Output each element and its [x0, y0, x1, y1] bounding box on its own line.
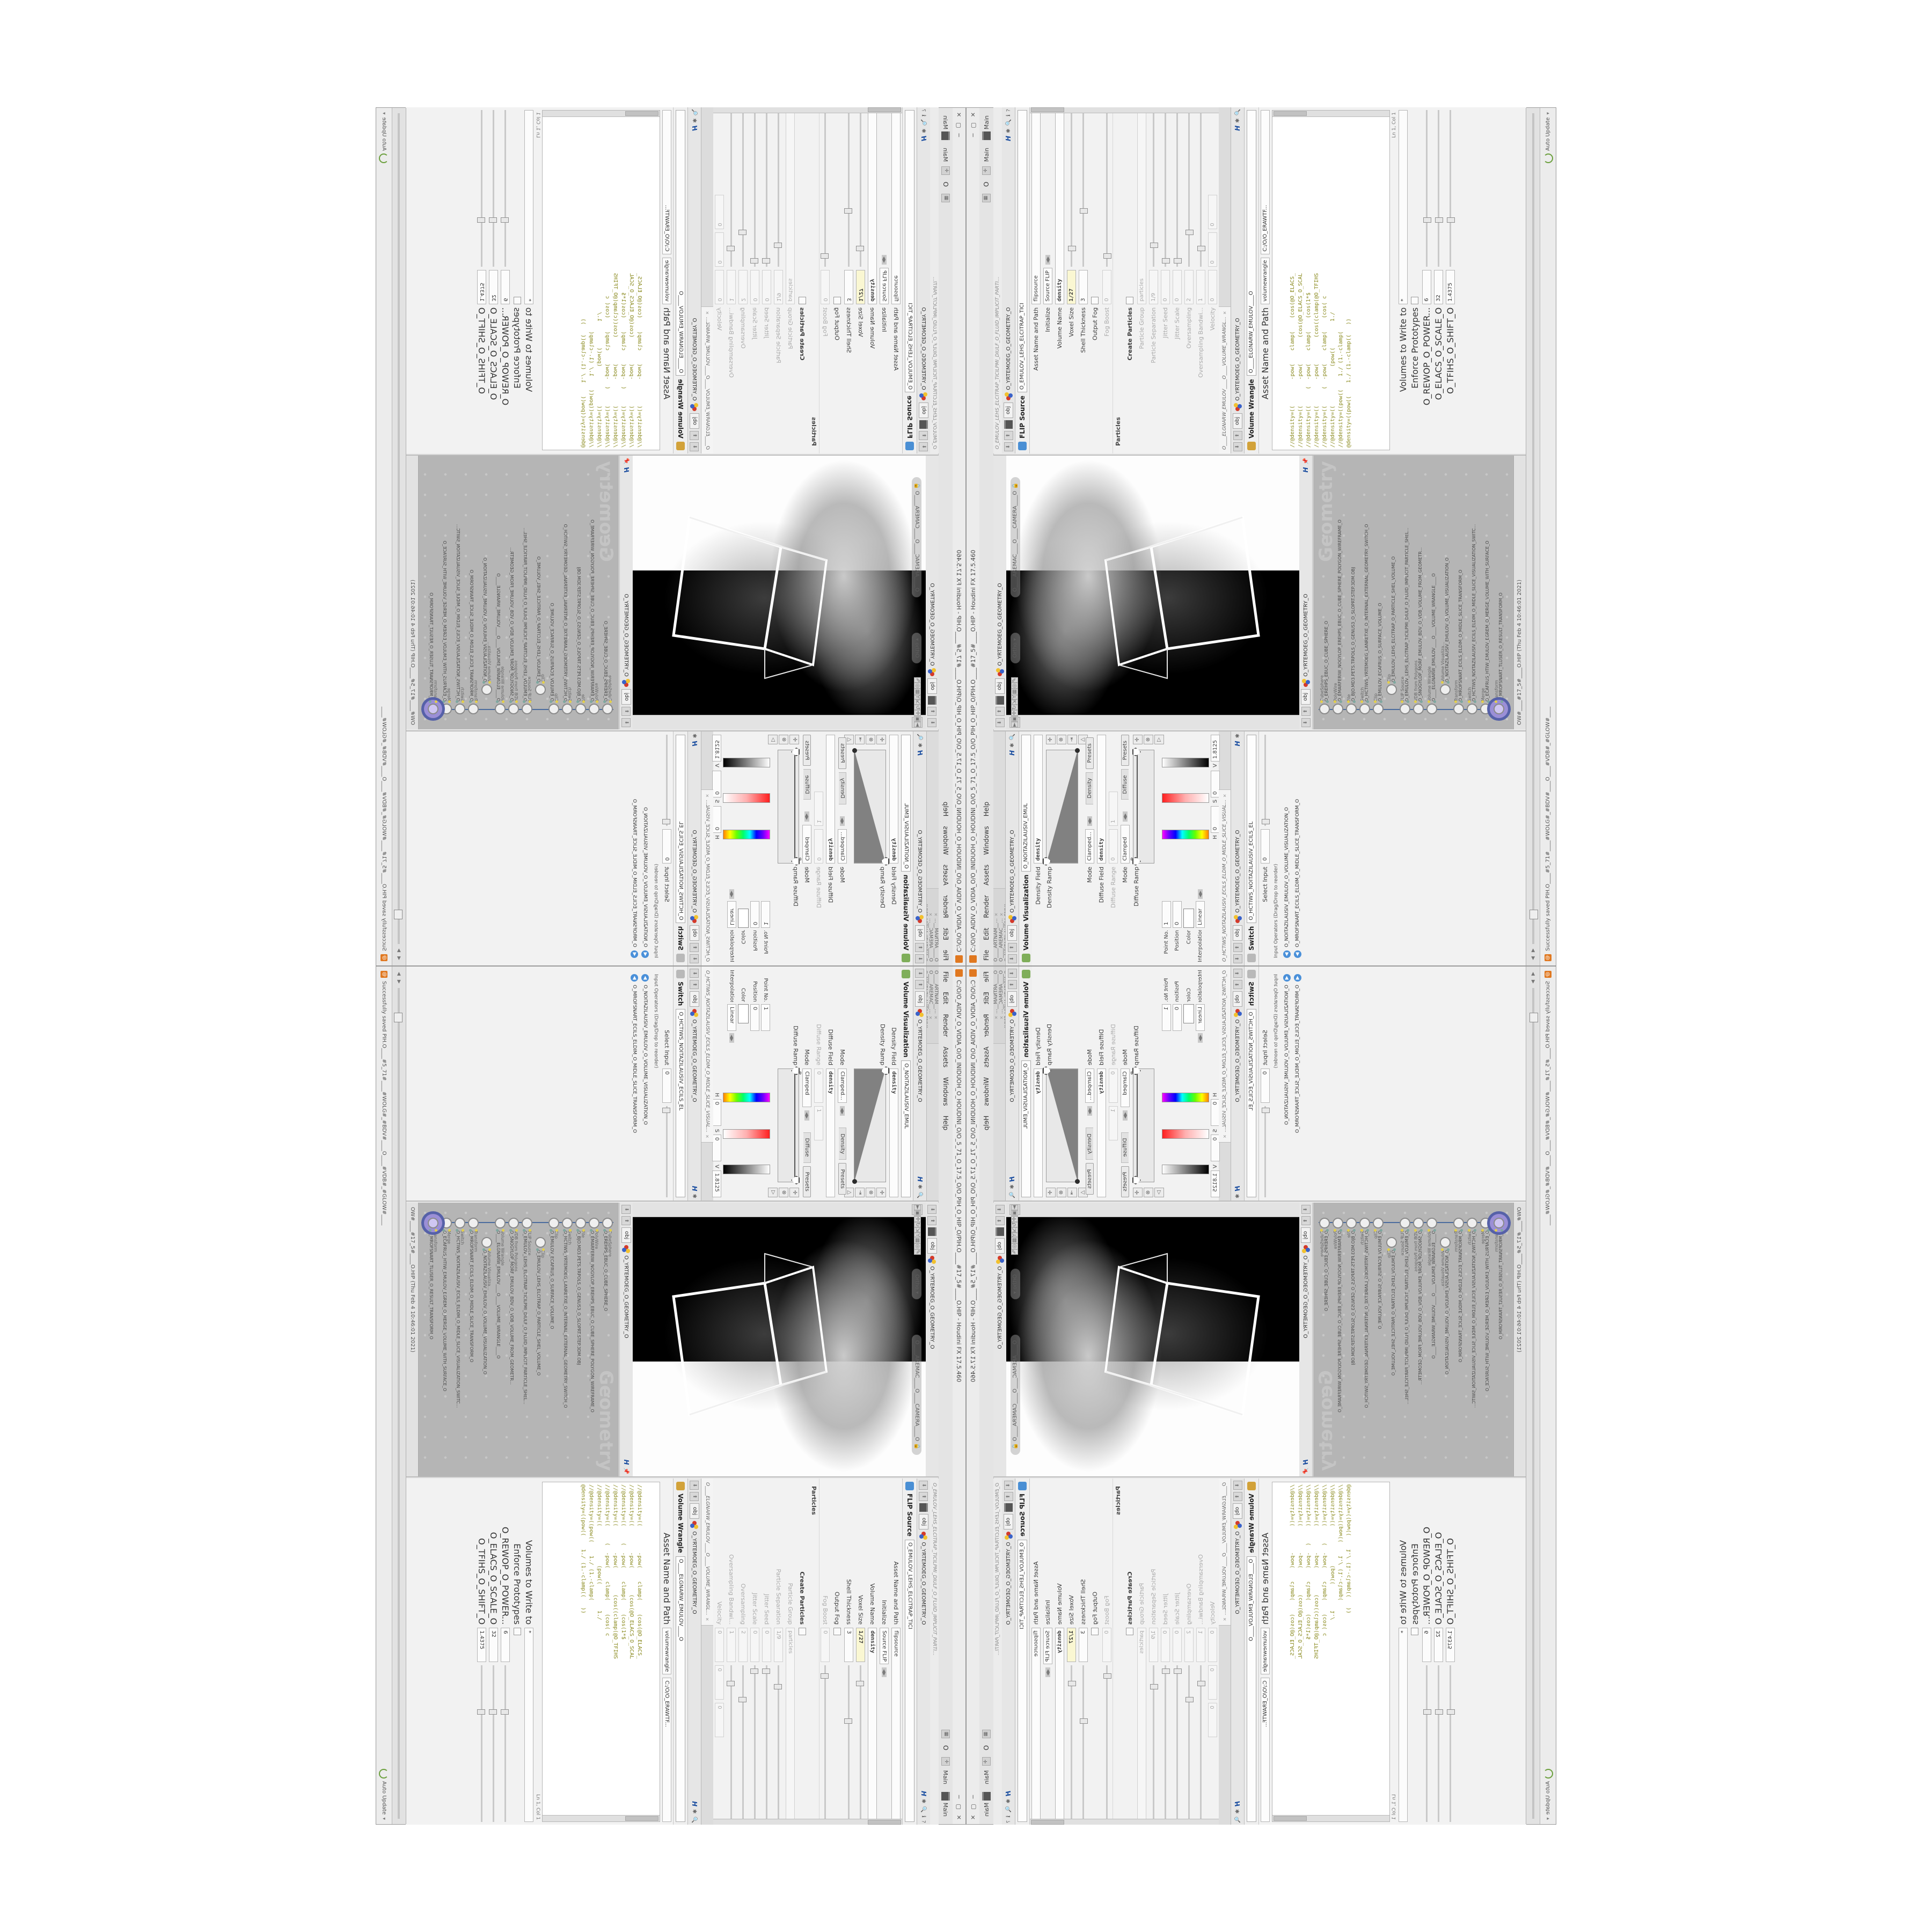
- render-flag-icon[interactable]: [1353, 700, 1356, 703]
- density-field-input[interactable]: density: [890, 1069, 899, 1197]
- breadcrumb-path[interactable]: O_YRTEMOEG_O_GEOMETRY_O: [1006, 307, 1012, 390]
- gear-icon[interactable]: ✱: [1235, 118, 1241, 122]
- desktop-selector[interactable]: ✛ Main: [982, 148, 991, 177]
- nav-back-icon[interactable]: ⬇: [690, 954, 699, 963]
- message-log-icon[interactable]: @: [1545, 971, 1552, 978]
- render-flag-icon[interactable]: [1393, 681, 1396, 684]
- jitter-scale-slider[interactable]: [1176, 1665, 1178, 1822]
- select-input-field[interactable]: 0: [663, 829, 672, 863]
- nav-back-icon[interactable]: ⬇: [1233, 1481, 1242, 1490]
- particle-separation-input[interactable]: 1/9: [774, 270, 784, 304]
- menu-item[interactable]: Assets: [942, 1042, 949, 1072]
- display-flag-icon[interactable]: [1360, 700, 1363, 703]
- pin-icon[interactable]: 📌: [624, 458, 630, 464]
- ramp-point-icon[interactable]: [852, 1179, 857, 1184]
- nav-back-icon[interactable]: ⬇: [1301, 1205, 1311, 1214]
- shell-thickness-input[interactable]: 3: [845, 270, 854, 304]
- node-circle-icon[interactable]: [1467, 704, 1477, 714]
- gear-icon[interactable]: ✱: [917, 1184, 923, 1189]
- menu-item[interactable]: Edit: [983, 923, 990, 945]
- breadcrumb-path[interactable]: O_YRTEMOEG_O_GEOMETRY_O: [692, 1531, 698, 1614]
- reorder-icon[interactable]: ◀: [631, 974, 638, 982]
- viewport-tool-icon[interactable]: ↻: [914, 1222, 921, 1227]
- viewport-tool-icon[interactable]: ✎: [1011, 1249, 1018, 1255]
- h-input[interactable]: 0: [712, 806, 721, 833]
- fog-boost-input[interactable]: 0: [1102, 270, 1111, 304]
- ramp-point-icon[interactable]: [1075, 1179, 1080, 1184]
- scene-viewport[interactable]: ►▣✛↻⇲Y▦◎✎ Ortho ▾ O____AREMAC____O____CA…: [1006, 1203, 1299, 1476]
- voxel-size-slider[interactable]: [1071, 110, 1072, 267]
- spare-parm-slider[interactable]: [1426, 110, 1428, 267]
- viewport-tool-icon[interactable]: ⇲: [1011, 699, 1018, 705]
- spare-parm-input[interactable]: 1.4375: [478, 270, 487, 304]
- gear-icon[interactable]: ✱: [917, 743, 923, 747]
- display-flag-icon[interactable]: [1428, 1229, 1430, 1232]
- velocity-z-input[interactable]: 0: [1208, 1703, 1217, 1737]
- close-tab-icon[interactable]: ✕: [1223, 794, 1227, 797]
- viewport-tool-icon[interactable]: ◎: [914, 683, 921, 689]
- ramp-add-icon[interactable]: ✛: [1046, 1188, 1056, 1197]
- viz-node-name-field[interactable]: O_NOITAZILAUSIV_EMUL: [1021, 735, 1031, 872]
- diffuse-field-input[interactable]: density: [1097, 1069, 1106, 1197]
- ramp-del-icon[interactable]: ⊗: [1144, 735, 1153, 744]
- help-icon[interactable]: ?: [1006, 109, 1012, 112]
- breadcrumb-path[interactable]: O_YRTEMOEG_O_GEOMETRY_O: [1235, 830, 1241, 912]
- reorder-icon[interactable]: ◀: [641, 950, 649, 958]
- pane-tab[interactable]: O_NOITAZILAUSIV_EMUL...✕: [926, 967, 928, 1044]
- oversampling-input[interactable]: 2: [1184, 1628, 1194, 1662]
- node-circle-icon[interactable]: [1319, 704, 1330, 714]
- point-no-input[interactable]: 1: [761, 1004, 770, 1031]
- search-icon[interactable]: 🔍: [921, 1806, 927, 1812]
- network-node[interactable]: FLIP Source O_EMULOV_LEHS_ELCITRAP_TICIL…: [1398, 1203, 1411, 1476]
- nav-back-icon[interactable]: ⬇: [919, 1481, 928, 1490]
- fog-boost-input[interactable]: 0: [1102, 1628, 1111, 1662]
- saturation-bar[interactable]: [1162, 1129, 1209, 1139]
- pane-tab[interactable]: O____AREMAC__...✕: [999, 967, 1004, 1044]
- network-editor[interactable]: Geometry CubeSphere O_EREHPS_EBUC_O_CUBE…: [418, 1203, 619, 1476]
- timeline-slider[interactable]: [1532, 988, 1534, 1819]
- diffuse-mode-select[interactable]: Clamped R...: [1121, 1069, 1130, 1107]
- display-flag-icon[interactable]: [1401, 1229, 1403, 1232]
- gear-icon[interactable]: ✱: [1235, 1809, 1241, 1813]
- close-tab-icon[interactable]: ✕: [928, 1016, 933, 1020]
- dropdown-arrows-icon[interactable]: ◀▶: [805, 811, 810, 821]
- nav-fwd-icon[interactable]: ⬆: [1233, 980, 1242, 989]
- render-flag-icon[interactable]: [1393, 1248, 1396, 1251]
- particle-separation-slider[interactable]: [778, 1665, 780, 1822]
- color-swatch[interactable]: [1183, 1004, 1194, 1023]
- gear-icon[interactable]: ✱: [1009, 743, 1015, 747]
- diffuse-mode-select[interactable]: Clamped R...: [1121, 825, 1130, 863]
- gear-icon[interactable]: ✱: [1006, 1799, 1012, 1803]
- display-flag-icon[interactable]: [1414, 700, 1417, 703]
- close-tab-icon[interactable]: ✕: [928, 912, 933, 916]
- network-node[interactable]: Switch O_HCTIWS_YRTEMOEG_LANRETXE_O_INTE…: [561, 1203, 574, 1476]
- search-icon[interactable]: 🔍: [692, 1817, 698, 1823]
- timeline-thumb[interactable]: [394, 1013, 402, 1022]
- network-node[interactable]: VDB from Polygons O_SNOGYLOP_MORF_EMULOV…: [1411, 456, 1425, 729]
- nav-fwd-icon[interactable]: ⬆: [916, 943, 925, 952]
- viewport-tool-icon[interactable]: ►: [914, 1205, 921, 1210]
- jitter-scale-input[interactable]: 0: [751, 270, 760, 304]
- nav-fwd-icon[interactable]: ⬆: [928, 707, 937, 716]
- spare-parm-input[interactable]: 1.4375: [478, 1628, 487, 1662]
- network-node[interactable]: Switch O_HCTIWS_YRTEMOEG_LANRETXE_O_INTE…: [1358, 456, 1371, 729]
- node-circle-icon[interactable]: [469, 704, 479, 714]
- render-flag-icon[interactable]: [550, 700, 553, 703]
- layout-icon[interactable]: ▦: [982, 194, 991, 202]
- nav-fwd-icon[interactable]: ⬆: [622, 1216, 631, 1225]
- close-tab-icon[interactable]: ✕: [999, 912, 1004, 916]
- pane-tab[interactable]: O____ARTNAM__...✕: [993, 888, 999, 965]
- minimize-button[interactable]: ─: [970, 1795, 977, 1799]
- breadcrumb-path[interactable]: O_YRTEMOEG_O_GEOMETRY_O: [1235, 1531, 1241, 1614]
- close-tab-icon[interactable]: ✕: [999, 1016, 1004, 1020]
- breadcrumb-path[interactable]: O_YRTEMOEG_O_GEOMETRY_O: [624, 1255, 630, 1338]
- spare-parm-slider[interactable]: [1438, 1665, 1439, 1822]
- viewport-tool-icon[interactable]: ▣: [1011, 716, 1018, 722]
- node-circle-icon[interactable]: [562, 1218, 573, 1228]
- close-tab-icon[interactable]: ✕: [705, 1135, 710, 1138]
- nav-fwd-icon[interactable]: ⬆: [916, 980, 925, 989]
- oversampling-slider[interactable]: [1188, 1665, 1190, 1822]
- network-node[interactable]: File O_BJO.MD3.PETS.TRPOLS_O_GENUS3_O_SL…: [1344, 456, 1358, 729]
- network-node[interactable]: FLIP Source O_EMULOV_LEHS_ELCITRAP_TICIL…: [521, 456, 534, 729]
- velocity-y-input[interactable]: 0: [1208, 232, 1217, 267]
- jitter-seed-input[interactable]: 0: [1161, 1628, 1170, 1662]
- timeline-slider[interactable]: [1532, 113, 1534, 944]
- diffuse-folder-tab[interactable]: Diffuse: [1121, 1132, 1129, 1163]
- render-flag-icon[interactable]: [1433, 700, 1436, 703]
- display-flag-icon[interactable]: [1320, 700, 1323, 703]
- close-tab-icon[interactable]: ✕: [934, 913, 939, 917]
- initialize-select[interactable]: Source FLIP: [1043, 1628, 1052, 1664]
- velocity-x-input[interactable]: 0: [715, 270, 724, 304]
- particles-section-label[interactable]: Particles: [1113, 107, 1124, 453]
- ramp-del-icon[interactable]: ⊗: [866, 735, 875, 744]
- menu-item[interactable]: Help: [983, 797, 990, 821]
- obj-breadcrumb[interactable]: obj: [1233, 1503, 1242, 1519]
- spare-parm-slider[interactable]: [493, 1665, 495, 1822]
- info-icon[interactable]: ℹ: [921, 1816, 927, 1818]
- obj-breadcrumb[interactable]: obj: [1233, 413, 1242, 429]
- switch-pane-tab[interactable]: O_HCTIWS_NOITAZILAUSIV_ECILS_ELDIM_O_MID…: [1219, 967, 1231, 1143]
- spare-parm-slider[interactable]: [505, 1665, 507, 1822]
- hue-bar[interactable]: [1162, 830, 1209, 839]
- diffuse-range-max[interactable]: 1: [815, 792, 824, 826]
- asset-name-input[interactable]: flipsource: [1031, 1628, 1041, 1822]
- nav-back-icon[interactable]: ⬇: [622, 1205, 631, 1214]
- diffuse-field-input[interactable]: density: [826, 1069, 836, 1197]
- obj-breadcrumb[interactable]: obj: [1004, 402, 1013, 418]
- node-circle-icon[interactable]: [1467, 1218, 1477, 1228]
- oversampling-bandwidth-slider[interactable]: [731, 1665, 733, 1822]
- ortho-pill[interactable]: Ortho ▾: [1011, 633, 1020, 663]
- node-circle-icon[interactable]: [1400, 704, 1410, 714]
- close-button[interactable]: ✕: [970, 1815, 977, 1820]
- obj-breadcrumb[interactable]: obj: [995, 678, 1005, 694]
- hue-bar[interactable]: [723, 1093, 770, 1102]
- ramp-handle-icon[interactable]: [1132, 1176, 1141, 1184]
- camera-pill[interactable]: O____AREMAC____O____CAMERA____O 🔒: [912, 477, 921, 597]
- velocity-z-input[interactable]: 0: [715, 195, 724, 229]
- gear-icon[interactable]: ✱: [1009, 1184, 1015, 1189]
- node-circle-icon[interactable]: [1346, 704, 1357, 714]
- particle-group-input[interactable]: particles: [786, 110, 795, 304]
- nav-back-icon[interactable]: ⬇: [622, 718, 631, 727]
- v-input[interactable]: 1.8125: [1211, 1170, 1220, 1197]
- velocity-z-input[interactable]: 0: [1208, 195, 1217, 229]
- display-flag-icon[interactable]: [1495, 1229, 1497, 1232]
- display-flag-icon[interactable]: [1334, 1229, 1336, 1232]
- menu-item[interactable]: Windows: [942, 1072, 949, 1111]
- vex-snippet-editor[interactable]: //@density=(( -pow( clamp( (cos(@O_ELACS…: [542, 1482, 660, 1822]
- ramp-add-icon[interactable]: ✛: [876, 1188, 886, 1197]
- node-circle-icon[interactable]: [1333, 1218, 1343, 1228]
- oversampling-input[interactable]: 2: [739, 1628, 748, 1662]
- particle-group-input[interactable]: particles: [1137, 1628, 1146, 1822]
- voxel-size-slider[interactable]: [1071, 1665, 1072, 1822]
- display-flag-icon[interactable]: [1374, 700, 1377, 703]
- create-particles-checkbox[interactable]: [799, 297, 806, 304]
- render-flag-icon[interactable]: [1460, 1229, 1463, 1232]
- menu-item[interactable]: Render: [942, 1009, 949, 1042]
- display-flag-icon[interactable]: [516, 700, 518, 703]
- node-circle-icon[interactable]: [1480, 704, 1491, 714]
- vex-snippet-editor[interactable]: //@density=(( -pow( clamp( (cos(@O_ELACS…: [1272, 1482, 1390, 1822]
- breadcrumb-path[interactable]: O_YRTEMOEG_O_GEOMETRY_O: [997, 583, 1003, 665]
- viewport-tool-icon[interactable]: ►: [1011, 722, 1018, 727]
- node-circle-icon[interactable]: [482, 1237, 493, 1248]
- density-mode-select[interactable]: Clamped...: [838, 829, 847, 863]
- desktop-selector[interactable]: ✛ Main: [941, 1755, 950, 1784]
- initialize-select[interactable]: Source FLIP: [880, 268, 889, 304]
- network-node[interactable]: PolyWire O_EMARFERIW_NOGYLOP_EREHPS_EBUC…: [1331, 456, 1344, 729]
- dropdown-arrows-icon[interactable]: ◀▶: [729, 1033, 734, 1043]
- display-flag-icon[interactable]: [475, 700, 478, 703]
- network-node[interactable]: CubeSphere O_EREHPS_EBUC_O_CUBE_SPHERE_O: [1318, 1203, 1331, 1476]
- network-node[interactable]: FLIP Source O_EMULOV_LEHS_ELCITRAP_TICIL…: [1398, 456, 1411, 729]
- playbar-right-icon[interactable]: ▶: [1531, 980, 1536, 984]
- saturation-bar[interactable]: [723, 1129, 770, 1139]
- nav-back-icon[interactable]: ⬇: [690, 969, 699, 978]
- shell-thickness-slider[interactable]: [1082, 1665, 1084, 1822]
- render-flag-icon[interactable]: [1366, 1229, 1369, 1232]
- particle-separation-slider[interactable]: [778, 110, 780, 267]
- particle-separation-input[interactable]: 1/9: [1149, 270, 1158, 304]
- enforce-prototypes-checkbox[interactable]: [514, 1628, 521, 1635]
- display-flag-icon[interactable]: [1414, 1229, 1417, 1232]
- node-circle-icon[interactable]: [1359, 704, 1370, 714]
- density-presets-button[interactable]: Presets: [1086, 1163, 1094, 1194]
- viewport-tool-icon[interactable]: ✛: [914, 1216, 921, 1221]
- particle-group-input[interactable]: particles: [1137, 110, 1146, 304]
- obj-breadcrumb[interactable]: obj: [919, 402, 928, 418]
- nav-back-icon[interactable]: ⬇: [1008, 954, 1017, 963]
- node-circle-icon[interactable]: [522, 704, 533, 714]
- network-node[interactable]: Switch O_HCTIWS_NOITAZILAUSIV_ECILS_ELDI…: [1465, 1203, 1479, 1476]
- spare-parm-slider[interactable]: [481, 110, 483, 267]
- spare-parm-input[interactable]: 6: [501, 1628, 510, 1662]
- wrangle-node-name-field[interactable]: O____ELGNARW_EMULOV____O: [676, 110, 685, 376]
- viewport-tool-icon[interactable]: ✎: [1011, 677, 1018, 683]
- jitter-scale-slider[interactable]: [755, 1665, 756, 1822]
- breadcrumb-path[interactable]: O_YRTEMOEG_O_GEOMETRY_O: [917, 1019, 923, 1102]
- wrangle-asset-path[interactable]: C:/O/O_ERAWTF...: [663, 1678, 672, 1822]
- node-circle-icon[interactable]: [1333, 704, 1343, 714]
- ramp-point-icon[interactable]: [852, 748, 857, 753]
- nav-fwd-icon[interactable]: ⬆: [928, 1216, 937, 1225]
- node-circle-icon[interactable]: [1494, 704, 1504, 714]
- nav-back-icon[interactable]: ⬇: [1004, 442, 1013, 451]
- nav-fwd-icon[interactable]: ⬆: [690, 431, 699, 440]
- network-node[interactable]: Transform O_MROFSNART_TLUSER_O_RESULT_TR…: [1492, 1203, 1505, 1476]
- wrangle-pane-tab[interactable]: O____ELGNARW_EMULOV____O____VOLUME_WRANG…: [701, 306, 713, 453]
- voxel-size-input[interactable]: 1/27: [857, 1628, 866, 1662]
- node-circle-icon[interactable]: [576, 1218, 587, 1228]
- render-flag-icon[interactable]: [1474, 700, 1476, 703]
- create-particles-checkbox[interactable]: [1126, 1628, 1133, 1635]
- dropdown-arrows-icon[interactable]: ◀▶: [882, 255, 887, 265]
- volume-name-input[interactable]: density: [1055, 110, 1064, 304]
- close-tab-icon[interactable]: ✕: [705, 1618, 710, 1621]
- node-circle-icon[interactable]: [1386, 1237, 1397, 1248]
- saturation-bar[interactable]: [723, 793, 770, 803]
- spare-parm-input[interactable]: 32: [489, 1628, 499, 1662]
- viewport-tool-icon[interactable]: ►: [1011, 1205, 1018, 1210]
- maximize-button[interactable]: ▢: [970, 122, 977, 128]
- node-circle-icon[interactable]: [536, 684, 546, 695]
- diffuse-field-input[interactable]: density: [1097, 735, 1106, 863]
- viewport-tool-icon[interactable]: ✎: [914, 677, 921, 683]
- color-swatch[interactable]: [1183, 909, 1194, 928]
- close-tab-icon[interactable]: ✕: [1223, 1618, 1227, 1621]
- node-circle-icon[interactable]: [1426, 704, 1437, 714]
- node-circle-icon[interactable]: [469, 1218, 479, 1228]
- obj-breadcrumb[interactable]: obj: [621, 1227, 631, 1243]
- viz-node-name-field[interactable]: O_NOITAZILAUSIV_EMUL: [901, 1060, 911, 1197]
- create-particles-checkbox[interactable]: [1126, 297, 1133, 304]
- flip-scrollbar[interactable]: [1030, 1819, 1219, 1825]
- position-input[interactable]: 0: [1173, 901, 1182, 928]
- output-fog-checkbox[interactable]: [1091, 297, 1099, 304]
- network-node[interactable]: Volume Visualiza... O_NOITAZILAUSIV_EMUL…: [480, 456, 494, 729]
- render-flag-icon[interactable]: [1407, 700, 1409, 703]
- playbar-right-icon[interactable]: ▶: [396, 948, 401, 952]
- diffuse-range-max[interactable]: 1: [1109, 1106, 1118, 1140]
- dropdown-arrows-icon[interactable]: ◀▶: [1087, 816, 1092, 826]
- node-circle-icon[interactable]: [509, 1218, 519, 1228]
- nav-fwd-icon[interactable]: ⬆: [690, 943, 699, 952]
- update-mode-control[interactable]: Auto Update ▾: [379, 112, 389, 163]
- obj-breadcrumb[interactable]: obj: [919, 1514, 928, 1529]
- nav-back-icon[interactable]: ⬇: [1233, 954, 1242, 963]
- maximize-button[interactable]: ▢: [956, 122, 963, 128]
- breadcrumb-path[interactable]: O_YRTEMOEG_O_GEOMETRY_O: [1303, 594, 1309, 676]
- network-node[interactable]: Volume Wrangle O____ELGNARW_EMULOV____O_…: [494, 456, 507, 729]
- nav-fwd-icon[interactable]: ⬆: [1233, 431, 1242, 440]
- switch-node-name-field[interactable]: O_HCTIWS_NOITAZILAUSIV_ECILS_EL: [676, 1009, 685, 1197]
- menu-item[interactable]: Edit: [983, 987, 990, 1009]
- breadcrumb-path[interactable]: O_YRTEMOEG_O_GEOMETRY_O: [917, 830, 923, 912]
- ramp-add-icon[interactable]: ✛: [1133, 1188, 1143, 1197]
- close-button[interactable]: ✕: [956, 112, 963, 117]
- layout-icon[interactable]: ▦: [941, 194, 950, 202]
- diffuse-ramp-widget[interactable]: [1133, 1069, 1154, 1182]
- timeline-thumb[interactable]: [394, 910, 402, 919]
- display-flag-icon[interactable]: [1401, 700, 1403, 703]
- spare-parm-slider[interactable]: [481, 1665, 483, 1822]
- obj-breadcrumb[interactable]: obj: [995, 1238, 1005, 1254]
- obj-breadcrumb[interactable]: obj: [1233, 991, 1242, 1007]
- initialize-select[interactable]: Source FLIP: [880, 1628, 889, 1664]
- node-circle-icon[interactable]: [455, 704, 466, 714]
- close-tab-icon[interactable]: ✕: [1223, 311, 1227, 314]
- menu-item[interactable]: Help: [942, 797, 949, 821]
- density-folder-tab[interactable]: Density: [839, 772, 846, 804]
- node-circle-icon[interactable]: [562, 704, 573, 714]
- diffuse-field-input[interactable]: density: [826, 735, 836, 863]
- voxel-size-slider[interactable]: [860, 110, 862, 267]
- nav-back-icon[interactable]: ⬇: [996, 718, 1005, 727]
- network-node[interactable]: Volume Wrangle O____ELGNARW_EMULOV____O_…: [1425, 1203, 1438, 1476]
- display-flag-icon[interactable]: [1374, 1229, 1377, 1232]
- nav-fwd-icon[interactable]: ⬆: [996, 1216, 1005, 1225]
- help-icon[interactable]: ?: [921, 109, 927, 112]
- menu-item[interactable]: Render: [983, 1009, 990, 1042]
- close-tab-icon[interactable]: ✕: [1223, 1135, 1227, 1138]
- network-node[interactable]: Volume Visualiza... O_NOITAZILAUSIV_EMUL…: [480, 1203, 494, 1476]
- reorder-icon[interactable]: ◀: [1294, 950, 1301, 958]
- menu-item[interactable]: Render: [983, 890, 990, 923]
- nav-back-icon[interactable]: ⬇: [928, 1205, 937, 1214]
- obj-breadcrumb[interactable]: obj: [927, 678, 937, 694]
- point-no-input[interactable]: 1: [1162, 901, 1171, 928]
- display-flag-icon[interactable]: [543, 681, 545, 684]
- spare-parm-input[interactable]: 1.4375: [1446, 270, 1455, 304]
- minimize-button[interactable]: ─: [956, 1795, 963, 1799]
- menu-item[interactable]: Help: [983, 1111, 990, 1135]
- diffuse-range-min[interactable]: 0: [815, 1069, 824, 1103]
- node-circle-icon[interactable]: [1413, 1218, 1424, 1228]
- value-bar[interactable]: [723, 1165, 770, 1174]
- network-node[interactable]: File O_BJO.MD3.PETS.TRPOLS_O_GENUS3_O_SL…: [1344, 1203, 1358, 1476]
- ramp-handle-icon[interactable]: [1132, 1066, 1141, 1075]
- dropdown-arrows-icon[interactable]: ◀▶: [729, 889, 734, 899]
- viewport-tool-icon[interactable]: ↻: [914, 705, 921, 710]
- switch-pane-tab[interactable]: O_HCTIWS_NOITAZILAUSIV_ECILS_ELDIM_O_MID…: [1219, 789, 1231, 965]
- scene-viewport[interactable]: ►▣✛↻⇲Y▦◎✎ Ortho ▾ O____AREMAC____O____CA…: [1006, 456, 1299, 729]
- display-flag-icon[interactable]: [1454, 1229, 1457, 1232]
- jitter-seed-input[interactable]: 0: [763, 1628, 772, 1662]
- obj-breadcrumb[interactable]: obj: [1301, 689, 1311, 705]
- display-flag-icon[interactable]: [1454, 700, 1457, 703]
- gear-icon[interactable]: ✱: [921, 129, 927, 133]
- network-editor[interactable]: Geometry CubeSphere O_EREHPS_EBUC_O_CUBE…: [418, 456, 619, 729]
- network-node[interactable]: File O_BJO.MD3.PETS.TRPOLS_O_GENUS3_O_SL…: [574, 1203, 588, 1476]
- node-circle-icon[interactable]: [1453, 704, 1464, 714]
- voxel-size-input[interactable]: 1/27: [1067, 270, 1076, 304]
- spare-parm-input[interactable]: 32: [1434, 270, 1443, 304]
- camera-pill[interactable]: O____AREMAC____O____CAMERA____O 🔒: [1011, 1335, 1020, 1455]
- ortho-pill[interactable]: Ortho ▾: [1011, 1269, 1020, 1299]
- node-circle-icon[interactable]: [495, 704, 506, 714]
- switch-node-name-field[interactable]: O_HCTIWS_NOITAZILAUSIV_ECILS_EL: [1247, 735, 1256, 923]
- help-icon[interactable]: ?: [1006, 1820, 1012, 1823]
- menu-item[interactable]: Edit: [942, 923, 949, 945]
- diffuse-folder-tab[interactable]: Diffuse: [803, 769, 811, 800]
